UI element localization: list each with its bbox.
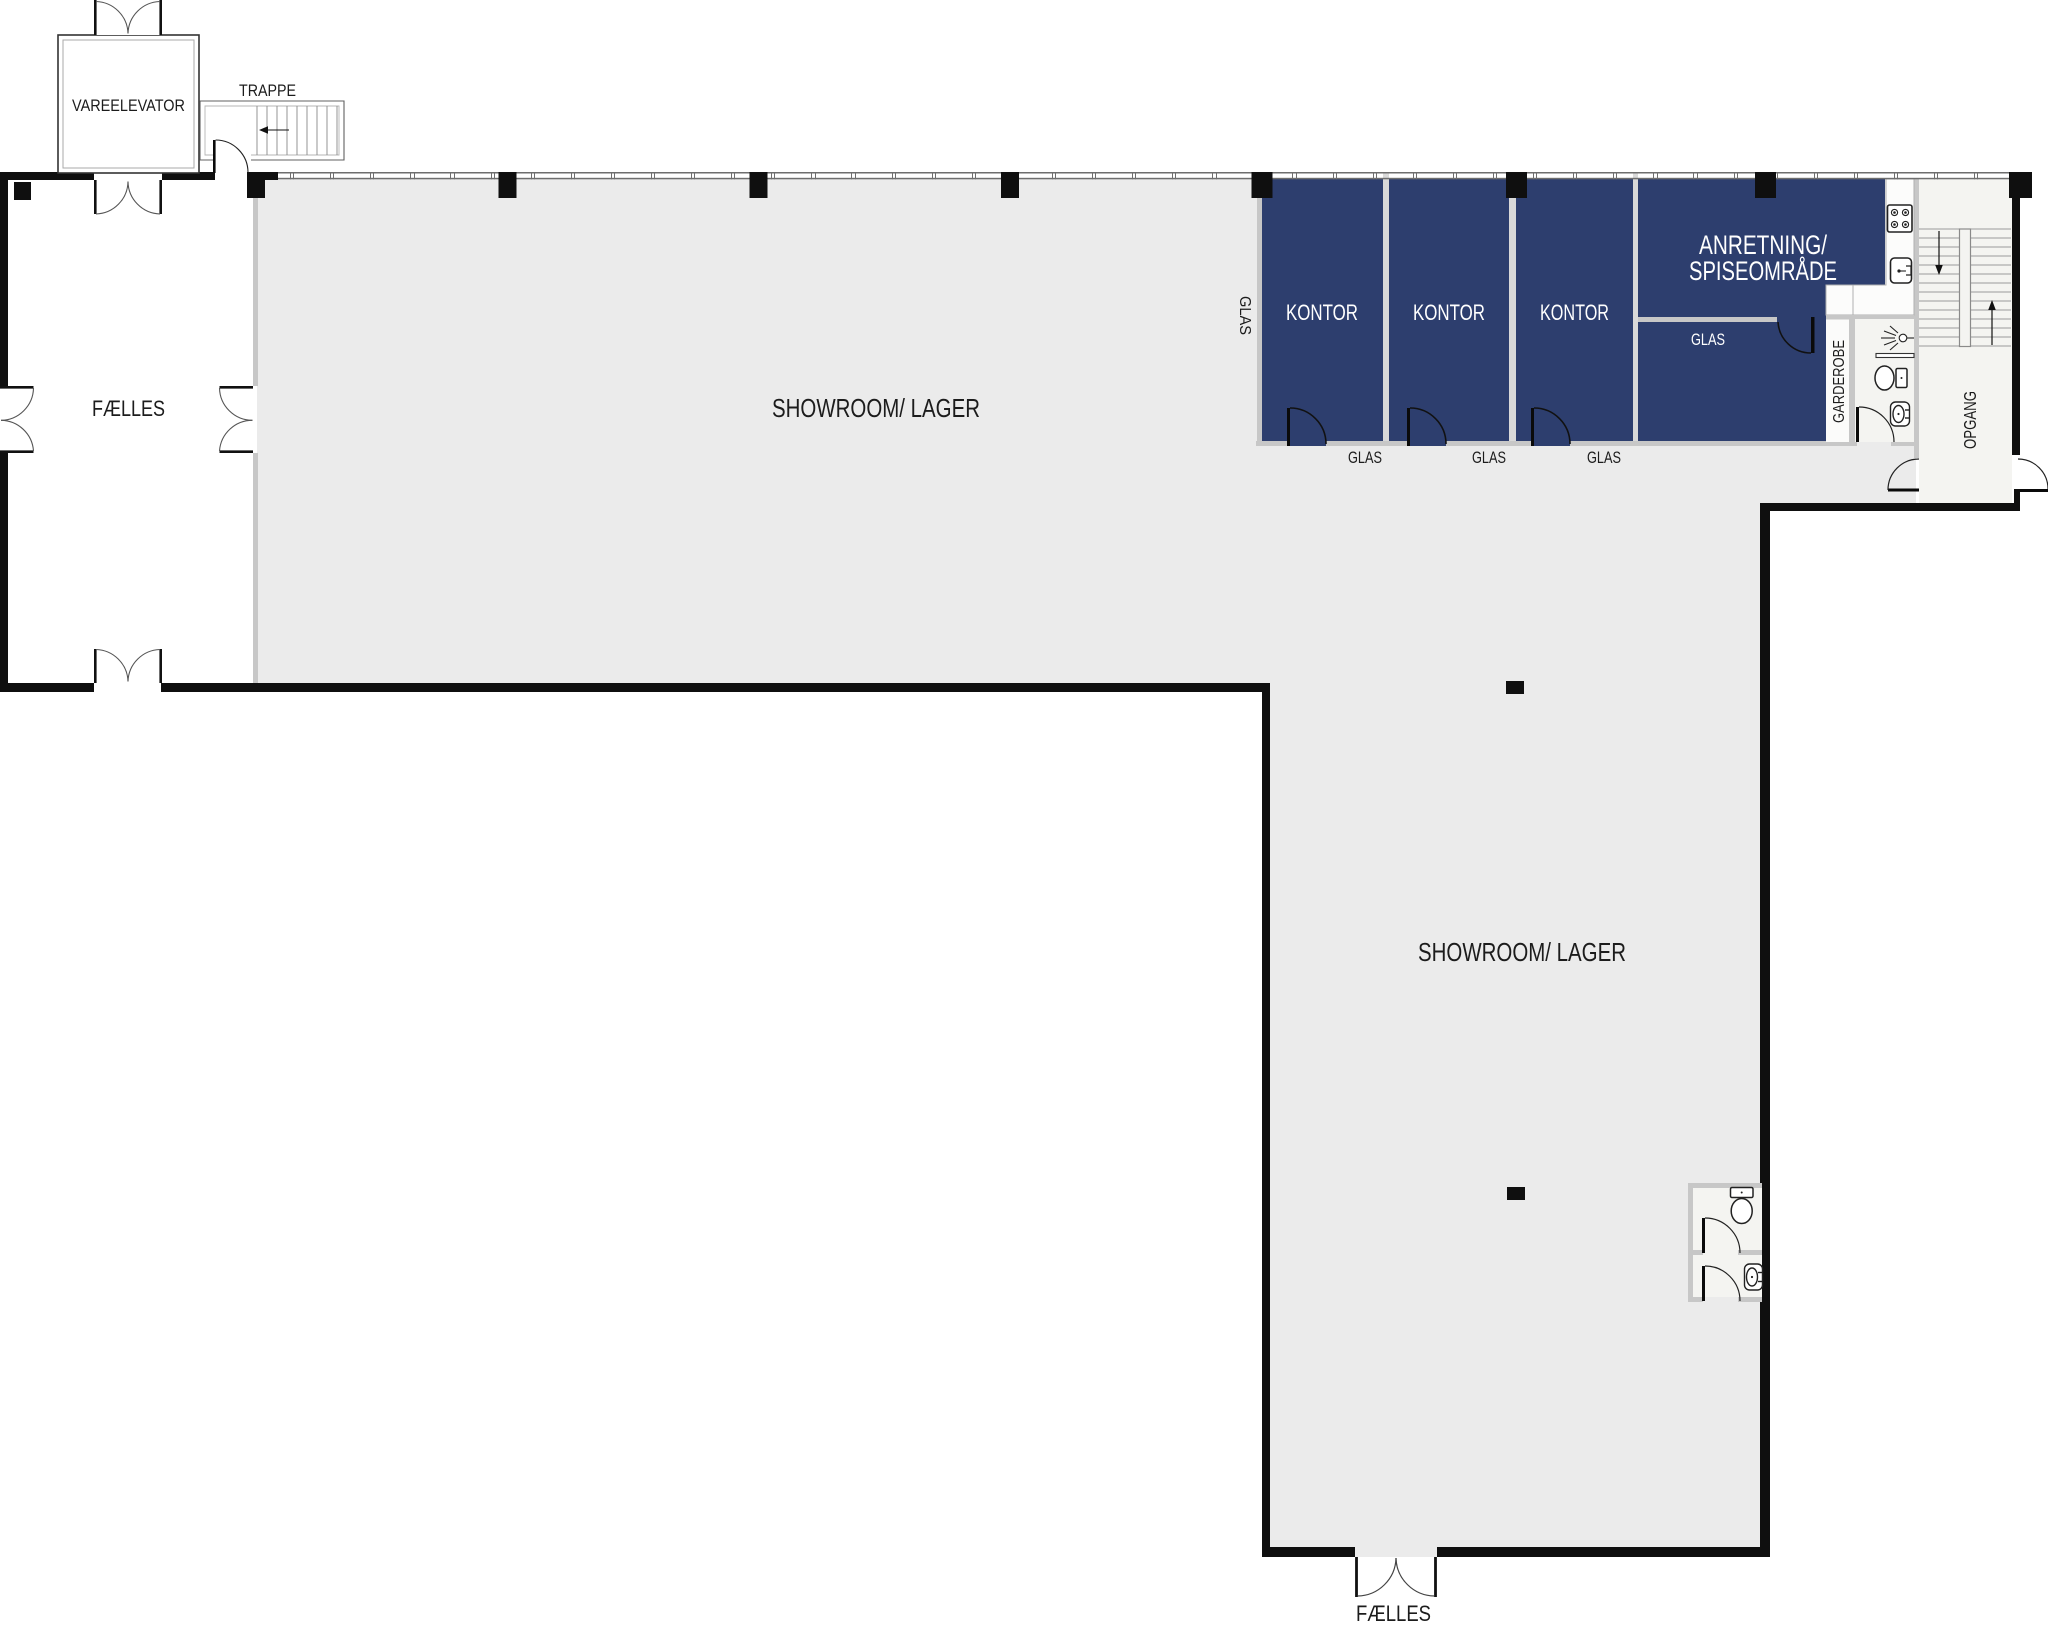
svg-text:FÆLLES: FÆLLES — [92, 396, 165, 421]
svg-text:GLAS: GLAS — [1691, 331, 1725, 349]
svg-text:SPISEOMRÅDE: SPISEOMRÅDE — [1689, 255, 1837, 286]
svg-text:FÆLLES: FÆLLES — [1356, 1601, 1431, 1626]
svg-text:KONTOR: KONTOR — [1286, 300, 1358, 325]
svg-text:GLAS: GLAS — [1472, 449, 1506, 467]
svg-text:SHOWROOM/ LAGER: SHOWROOM/ LAGER — [772, 393, 980, 423]
svg-text:OPGANG: OPGANG — [1960, 391, 1980, 449]
svg-text:GARDEROBE: GARDEROBE — [1831, 340, 1848, 423]
svg-text:KONTOR: KONTOR — [1540, 300, 1609, 325]
svg-text:SHOWROOM/ LAGER: SHOWROOM/ LAGER — [1418, 937, 1626, 967]
svg-text:GLAS: GLAS — [1348, 449, 1382, 467]
svg-text:GLAS: GLAS — [1587, 449, 1621, 467]
svg-text:VAREELEVATOR: VAREELEVATOR — [72, 96, 185, 115]
svg-text:KONTOR: KONTOR — [1413, 300, 1485, 325]
svg-text:GLAS: GLAS — [1236, 296, 1253, 335]
svg-text:TRAPPE: TRAPPE — [239, 82, 296, 100]
